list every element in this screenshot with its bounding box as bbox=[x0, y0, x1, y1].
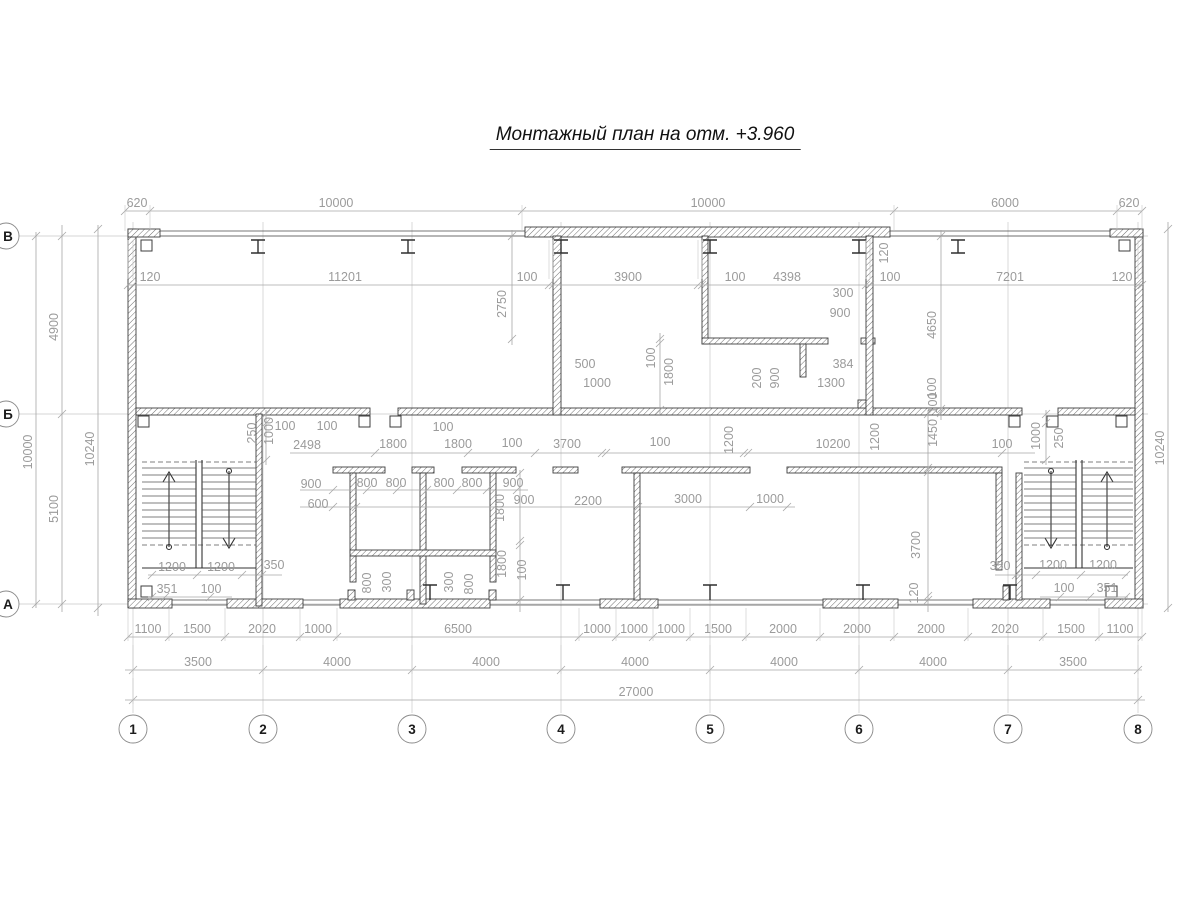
dimension-label: 100 bbox=[317, 419, 338, 433]
dimension-label: 600 bbox=[308, 497, 329, 511]
dimension-label: 1800 bbox=[662, 358, 676, 386]
dimension-label: 620 bbox=[127, 196, 148, 210]
column-axis-label: 3 bbox=[408, 722, 416, 737]
dimension-label: 500 bbox=[575, 357, 596, 371]
dimension-label: 3500 bbox=[184, 655, 212, 669]
dimension-label: 4000 bbox=[621, 655, 649, 669]
dimension-label: 4000 bbox=[472, 655, 500, 669]
wall-segment bbox=[996, 473, 1002, 570]
dimension-label: 1200 bbox=[868, 423, 882, 451]
dimension-label: 100 bbox=[433, 420, 454, 434]
row-axis-label: В bbox=[3, 229, 13, 244]
wall-segment bbox=[128, 599, 172, 608]
wall-segment bbox=[350, 550, 496, 556]
wall-segment bbox=[866, 236, 873, 415]
dimension-label: 100 bbox=[201, 582, 222, 596]
column-axis-label: 8 bbox=[1134, 722, 1142, 737]
wall-segment bbox=[340, 599, 490, 608]
dimension-label: 120 bbox=[907, 583, 921, 604]
wall-segment bbox=[128, 229, 160, 237]
dimension-label: 100 bbox=[515, 560, 529, 581]
column-square-icon bbox=[1119, 240, 1130, 251]
dimension-label: 350 bbox=[264, 558, 285, 572]
dimension-label: 5100 bbox=[47, 495, 61, 523]
dimension-label: 1000 bbox=[304, 622, 332, 636]
dimension-label: 3700 bbox=[553, 437, 581, 451]
wall-segment bbox=[489, 590, 496, 600]
stair-direction-arrow-down bbox=[1045, 469, 1057, 549]
column-axis-label: 4 bbox=[557, 722, 565, 737]
dimension-label: 2000 bbox=[917, 622, 945, 636]
dimension-label: 1000 bbox=[756, 492, 784, 506]
dimension-label: 300 bbox=[380, 572, 394, 593]
dimension-label: 1200 bbox=[1089, 558, 1117, 572]
wall-segment bbox=[136, 408, 370, 415]
drawing-sheet: Монтажный план на отм. +3.960 bbox=[0, 0, 1200, 900]
dimension-label: 900 bbox=[301, 477, 322, 491]
dimension-label: 100 bbox=[1054, 581, 1075, 595]
dimension-label: 1000 bbox=[583, 376, 611, 390]
wall-segment bbox=[787, 467, 1002, 473]
dimension-label: 100 bbox=[275, 419, 296, 433]
dimension-label: 100 bbox=[502, 436, 523, 450]
dimension-label: 800 bbox=[386, 476, 407, 490]
wall-segment bbox=[1110, 229, 1143, 237]
column-square-icon bbox=[1116, 416, 1127, 427]
dimension-label: 1000 bbox=[657, 622, 685, 636]
row-axis-label: Б bbox=[3, 407, 13, 422]
wall-segment bbox=[227, 599, 303, 608]
dimension-label: 3700 bbox=[909, 531, 923, 559]
dimension-label: 4650 bbox=[925, 311, 939, 339]
dimension-label: 800 bbox=[357, 476, 378, 490]
dimension-label: 100 bbox=[517, 270, 538, 284]
dimension-label: 120 bbox=[140, 270, 161, 284]
dimension-label: 900 bbox=[514, 493, 535, 507]
stairwell-right bbox=[1024, 460, 1133, 568]
dimension-label: 1800 bbox=[444, 437, 472, 451]
column-square-icon bbox=[138, 416, 149, 427]
dimension-label: 350 bbox=[990, 559, 1011, 573]
wall-segment bbox=[1135, 229, 1143, 608]
dimension-label: 1800 bbox=[495, 550, 509, 578]
dimension-label: 4398 bbox=[773, 270, 801, 284]
dimension-label: 1300 bbox=[817, 376, 845, 390]
dimension-label: 2000 bbox=[769, 622, 797, 636]
dimension-label: 6500 bbox=[444, 622, 472, 636]
wall-segment bbox=[600, 599, 658, 608]
dimension-label: 384 bbox=[833, 357, 854, 371]
dimension-label: 120 bbox=[1112, 270, 1133, 284]
dimension-label: 250 bbox=[245, 423, 259, 444]
dimension-label: 2020 bbox=[248, 622, 276, 636]
wall-segment bbox=[1105, 599, 1143, 608]
stair-direction-arrow-down bbox=[223, 469, 235, 549]
dimension-label: 1200 bbox=[207, 560, 235, 574]
dimension-label: 300 bbox=[442, 572, 456, 593]
dimension-label: 2200 bbox=[574, 494, 602, 508]
column-square-icon bbox=[359, 416, 370, 427]
dimension-label: 100 bbox=[926, 393, 940, 414]
dimension-label: 800 bbox=[462, 574, 476, 595]
dimension-label: 10240 bbox=[1153, 431, 1167, 466]
dimension-label: 1500 bbox=[704, 622, 732, 636]
column-axis-label: 1 bbox=[129, 722, 137, 737]
dimension-label: 1500 bbox=[183, 622, 211, 636]
column-square-icon bbox=[390, 416, 401, 427]
wall-segment bbox=[525, 227, 890, 237]
dimension-label: 3500 bbox=[1059, 655, 1087, 669]
dimension-label: 200 bbox=[750, 368, 764, 389]
dimension-label: 10000 bbox=[319, 196, 354, 210]
dimension-label: 100 bbox=[644, 348, 658, 369]
dimension-label: 1000 bbox=[1029, 422, 1043, 450]
dimension-label: 11201 bbox=[328, 270, 362, 284]
dimension-label: 1200 bbox=[158, 560, 186, 574]
dimension-label: 1200 bbox=[722, 426, 736, 454]
drawing-title: Монтажный план на отм. +3.960 bbox=[490, 124, 801, 150]
dimension-label: 4000 bbox=[919, 655, 947, 669]
dimension-label: 10240 bbox=[83, 432, 97, 467]
wall-segment bbox=[1003, 586, 1009, 600]
wall-segment bbox=[858, 400, 866, 408]
wall-segment bbox=[553, 236, 561, 415]
dimension-label: 4900 bbox=[47, 313, 61, 341]
dimension-label: 27000 bbox=[619, 685, 654, 699]
wall-segment bbox=[622, 467, 750, 473]
wall-segment bbox=[407, 590, 414, 600]
wall-segment bbox=[702, 338, 828, 344]
dimension-label: 620 bbox=[1119, 196, 1140, 210]
dimension-label: 800 bbox=[434, 476, 455, 490]
i-beam-column-icons bbox=[251, 240, 965, 253]
dimension-label: 1000 bbox=[583, 622, 611, 636]
wall-segment bbox=[350, 473, 356, 553]
wall-segment bbox=[350, 556, 356, 582]
wall-segment bbox=[553, 467, 578, 473]
dimension-label: 7201 bbox=[996, 270, 1024, 284]
walls-layer bbox=[128, 227, 1143, 608]
dimension-label: 1100 bbox=[1107, 622, 1134, 636]
dimension-label: 2000 bbox=[843, 622, 871, 636]
dimension-label: 100 bbox=[650, 435, 671, 449]
dimension-label: 10200 bbox=[816, 437, 851, 451]
column-square-icon bbox=[141, 586, 152, 597]
dimension-label: 1800 bbox=[493, 494, 507, 522]
column-axis-label: 6 bbox=[855, 722, 863, 737]
dimension-label: 250 bbox=[1052, 428, 1066, 449]
dimension-label: 10000 bbox=[21, 435, 35, 470]
dimension-label: 120 bbox=[877, 243, 891, 264]
wall-segment bbox=[1016, 473, 1022, 600]
wall-segment bbox=[800, 344, 806, 377]
dimension-label: 1500 bbox=[1057, 622, 1085, 636]
column-axis-label: 2 bbox=[259, 722, 267, 737]
wall-segment bbox=[634, 473, 640, 600]
row-axis-label: А bbox=[3, 597, 13, 612]
dimension-label: 100 bbox=[992, 437, 1013, 451]
dimension-label: 3900 bbox=[614, 270, 642, 284]
stairwell-left bbox=[142, 460, 256, 568]
dimension-label: 100 bbox=[880, 270, 901, 284]
wall-segment bbox=[823, 599, 898, 608]
wall-segment bbox=[412, 467, 434, 473]
wall-segment bbox=[702, 236, 708, 344]
dimension-label: 900 bbox=[830, 306, 851, 320]
dimension-label: 2020 bbox=[991, 622, 1019, 636]
dimension-label: 100 bbox=[725, 270, 746, 284]
dimension-label: 1450 bbox=[926, 419, 940, 447]
dimension-label: 351 bbox=[157, 582, 178, 596]
wall-segment bbox=[462, 467, 516, 473]
wall-segment bbox=[973, 599, 1050, 608]
column-square-icon bbox=[1009, 416, 1020, 427]
dimension-label: 1200 bbox=[1039, 558, 1067, 572]
column-square-icon bbox=[141, 240, 152, 251]
dimension-label: 4000 bbox=[770, 655, 798, 669]
dimension-label: 1000 bbox=[620, 622, 648, 636]
column-axis-label: 5 bbox=[706, 722, 714, 737]
dimension-label: 1800 bbox=[379, 437, 407, 451]
dimension-label: 900 bbox=[503, 476, 524, 490]
wall-segment bbox=[348, 590, 355, 600]
dimension-label: 300 bbox=[833, 286, 854, 300]
dimension-label: 900 bbox=[768, 368, 782, 389]
dimension-label: 2750 bbox=[495, 290, 509, 318]
dimension-label: 800 bbox=[462, 476, 483, 490]
wall-segment bbox=[333, 467, 385, 473]
column-square-icon bbox=[1047, 416, 1058, 427]
wall-segment bbox=[1058, 408, 1135, 415]
dimension-label: 2498 bbox=[293, 438, 321, 452]
dimension-label: 1100 bbox=[135, 622, 162, 636]
dimension-label: 4000 bbox=[323, 655, 351, 669]
dimension-label: 3000 bbox=[674, 492, 702, 506]
dimension-label: 6000 bbox=[991, 196, 1019, 210]
dimension-label: 800 bbox=[360, 573, 374, 594]
dimension-label: 351 bbox=[1097, 581, 1118, 595]
dimension-label: 10000 bbox=[691, 196, 726, 210]
column-axis-label: 7 bbox=[1004, 722, 1012, 737]
